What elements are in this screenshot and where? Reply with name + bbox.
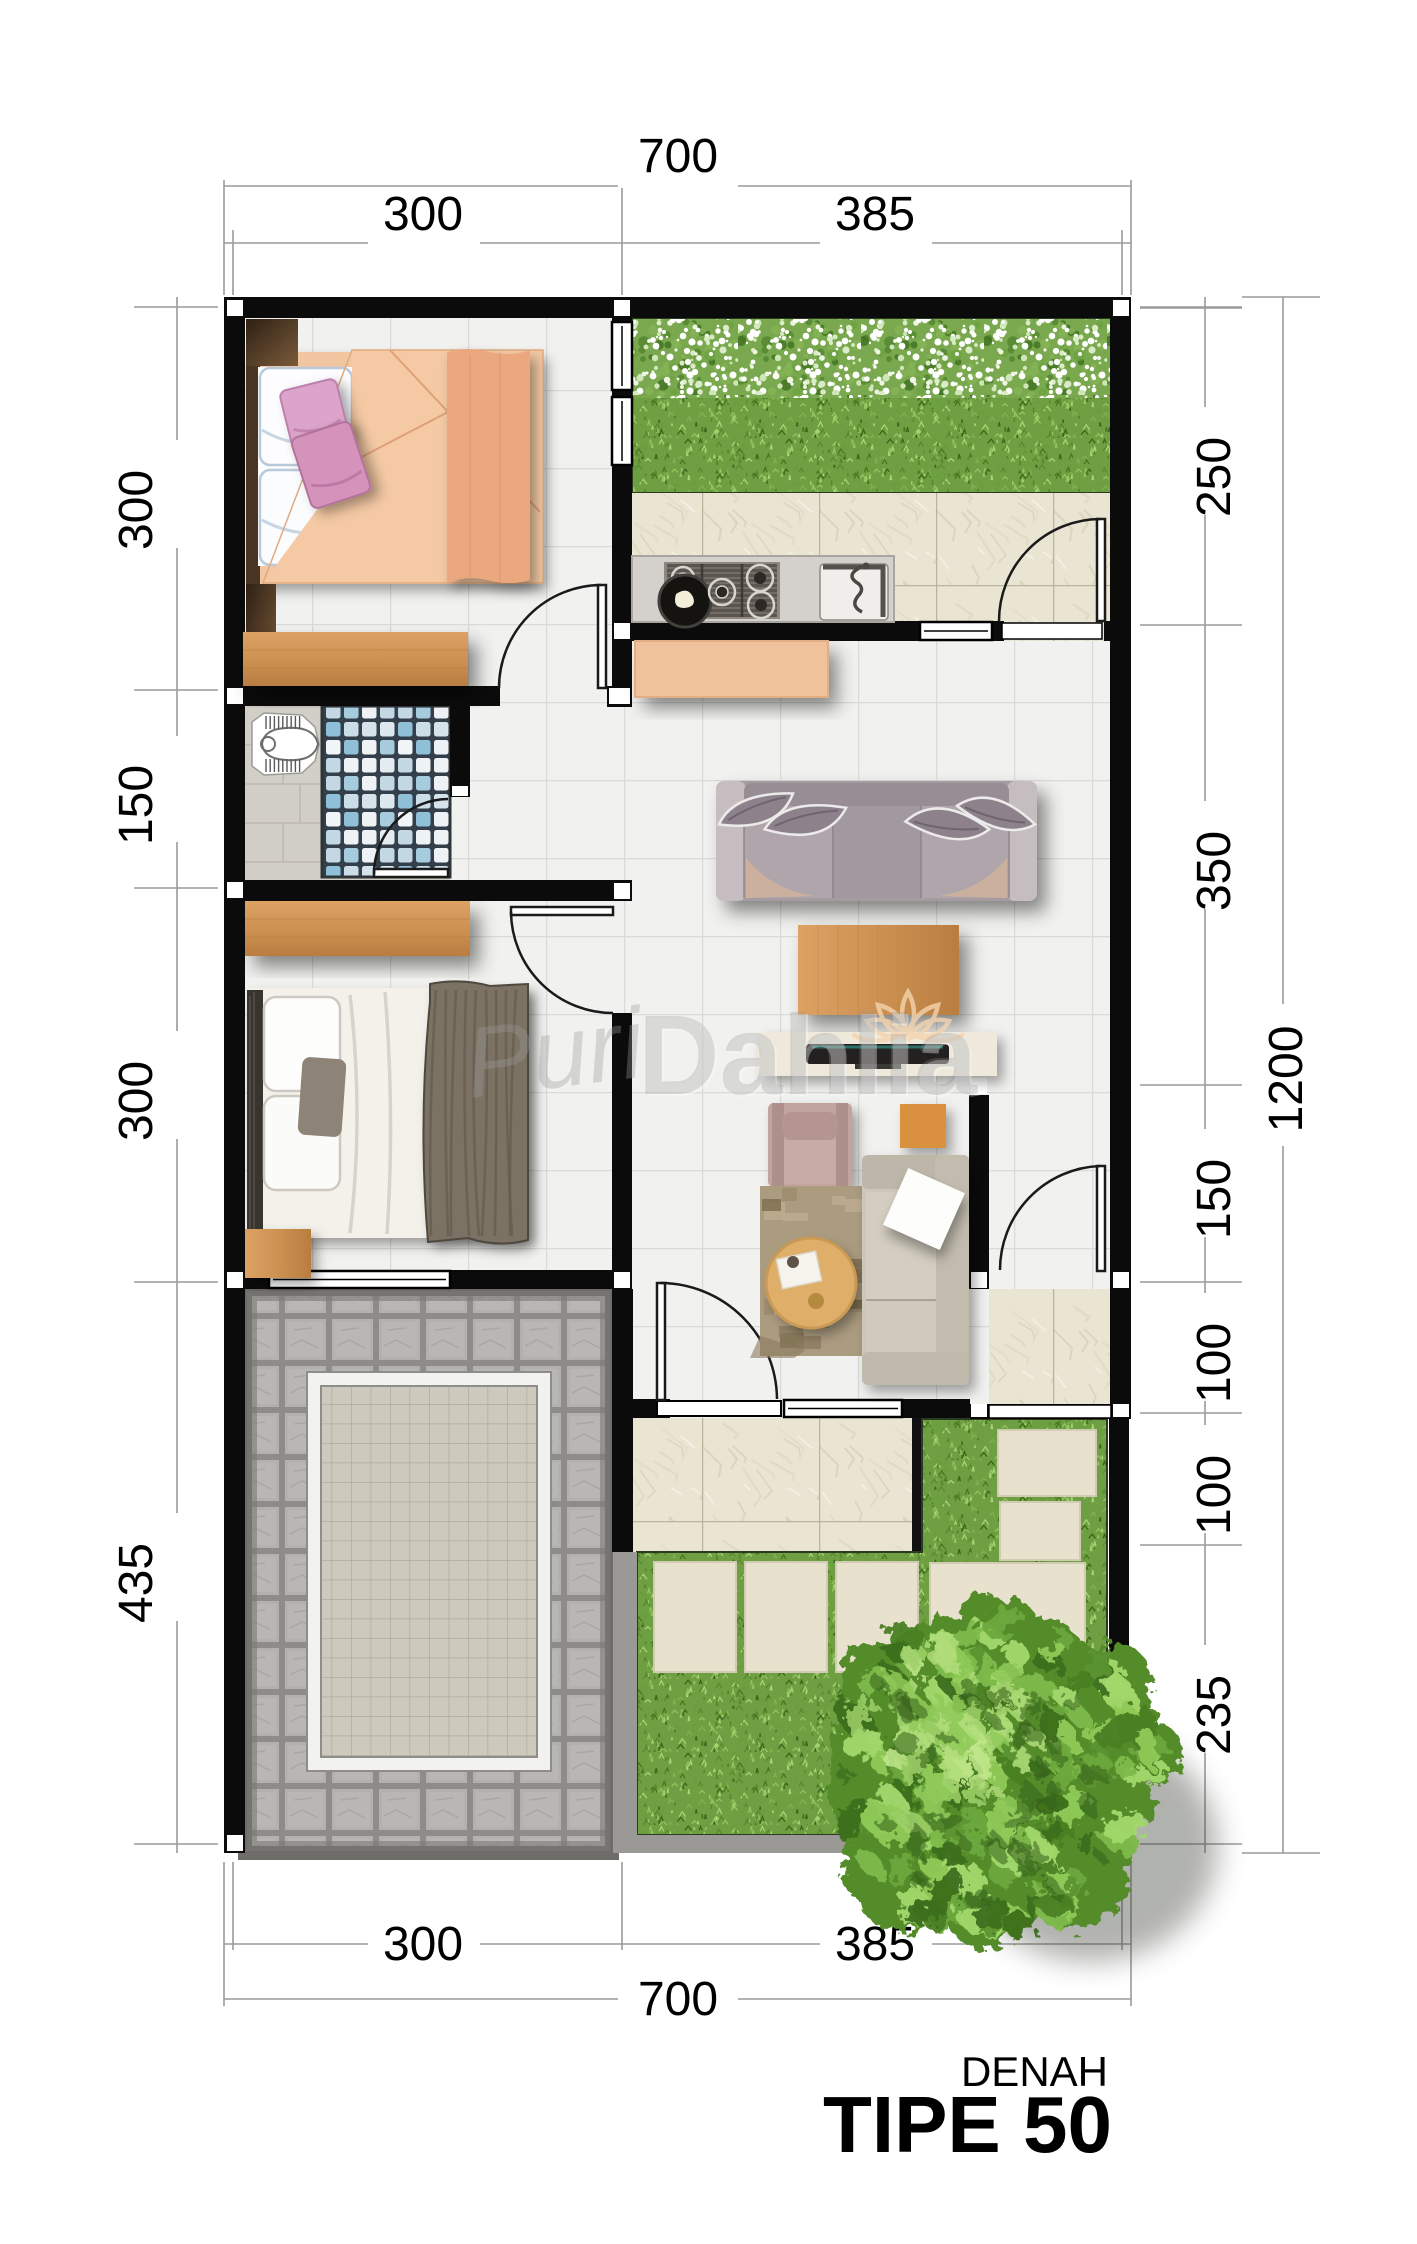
svg-text:Dahlia: Dahlia [638,992,978,1118]
svg-text:1200: 1200 [1260,1026,1313,1133]
svg-text:150: 150 [110,765,163,845]
svg-text:385: 385 [835,188,915,241]
svg-text:100: 100 [1188,1455,1241,1535]
svg-text:700: 700 [638,130,718,183]
svg-text:300: 300 [110,1061,163,1141]
svg-text:Puri: Puri [459,987,652,1120]
svg-text:150: 150 [1188,1159,1241,1239]
svg-text:435: 435 [110,1543,163,1623]
svg-text:250: 250 [1188,437,1241,517]
svg-text:300: 300 [383,1918,463,1971]
svg-text:300: 300 [383,188,463,241]
svg-text:300: 300 [110,470,163,550]
svg-text:TIPE 50: TIPE 50 [823,2080,1112,2169]
svg-text:100: 100 [1188,1323,1241,1403]
svg-text:700: 700 [638,1973,718,2026]
svg-text:350: 350 [1188,831,1241,911]
svg-text:235: 235 [1188,1675,1241,1755]
